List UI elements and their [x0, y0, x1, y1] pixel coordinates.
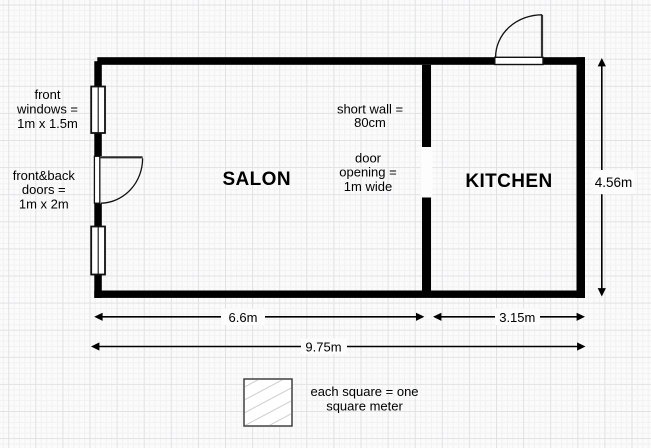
svg-text:windows =: windows =	[16, 101, 78, 116]
svg-text:6.6m: 6.6m	[229, 310, 258, 325]
svg-text:front&back: front&back	[13, 168, 76, 183]
svg-text:9.75m: 9.75m	[305, 339, 341, 354]
svg-text:3.15m: 3.15m	[499, 310, 535, 325]
svg-text:4.56m: 4.56m	[595, 175, 633, 190]
svg-text:80cm: 80cm	[354, 115, 386, 130]
svg-text:SALON: SALON	[222, 169, 291, 190]
svg-text:1m x 2m: 1m x 2m	[19, 196, 69, 211]
svg-text:KITCHEN: KITCHEN	[465, 171, 552, 192]
svg-text:doors =: doors =	[22, 182, 66, 197]
svg-text:front: front	[34, 87, 60, 102]
svg-text:door: door	[355, 150, 382, 165]
svg-text:each square = one: each square = one	[310, 384, 418, 399]
svg-text:1m wide: 1m wide	[344, 179, 392, 194]
svg-text:1m x 1.5m: 1m x 1.5m	[17, 116, 78, 131]
svg-text:square meter: square meter	[326, 399, 403, 414]
svg-text:opening =: opening =	[339, 165, 396, 180]
